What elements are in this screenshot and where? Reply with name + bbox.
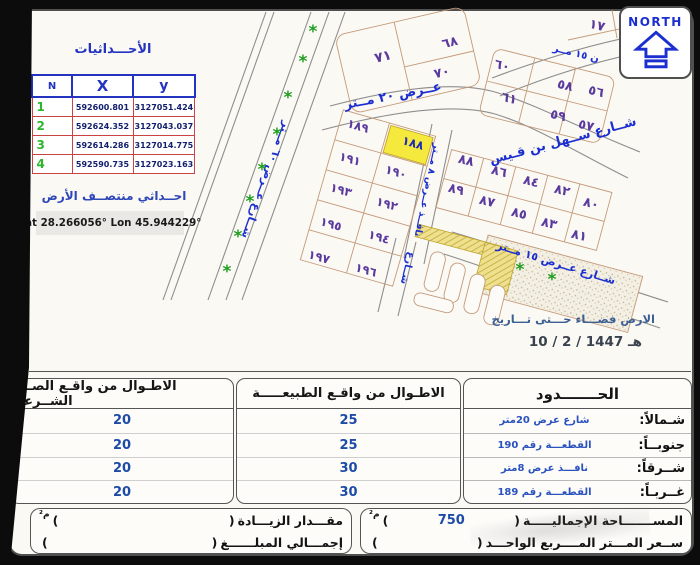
length-row: 20 — [11, 433, 233, 457]
coordinate-value: 592614.286 — [72, 136, 133, 155]
coordinate-row: 1592600.8013127051.424 — [32, 97, 195, 117]
deed-length-value: 20 — [113, 413, 131, 428]
coordinate-value: 3127043.037 — [133, 117, 195, 136]
boundary-value: القطعـــة رقم 190 — [470, 440, 619, 451]
total-area-row: المســـــــاحة الإجماليـــــة ( 750 ) م² — [361, 509, 691, 531]
paren-close: ) — [53, 513, 59, 528]
coordinates-header-row: N X y — [32, 75, 195, 97]
col-header-y: y — [133, 75, 195, 97]
coordinate-value: 592590.735 — [72, 155, 133, 174]
center-coordinates-title: احــداثي منتصــف الأرض — [38, 189, 190, 203]
coordinate-row: 4592590.7353127023.163 — [32, 155, 195, 174]
north-arrow-icon — [630, 29, 682, 71]
price-per-meter-label: ســعر المـــتر المــــربع الواحـــد — [486, 535, 683, 550]
deed-lengths-table: الاطـوال من واقـع الصــك الشــرعي 202020… — [10, 378, 234, 504]
coordinate-value: 3127051.424 — [133, 97, 195, 117]
deed-length-value: 20 — [113, 461, 131, 476]
amount-summary-box: مقـــدار الزيـــادة ( ) م² إجمـــالي الم… — [30, 508, 352, 554]
coordinates-table: N X y 1592600.8013127051.4242592624.3523… — [31, 74, 196, 174]
boundary-value: نافـــذ عرض 8متر — [470, 463, 619, 474]
status-date: 10 / 2 / 1447 هـ — [529, 334, 642, 350]
total-area-unit: م² — [369, 510, 380, 520]
boundary-value: القطعـــة رقم 189 — [470, 487, 619, 498]
point-number: 3 — [32, 136, 72, 155]
deed-length-value: 20 — [113, 485, 131, 500]
north-label: NORTH — [628, 15, 683, 29]
boundaries-table: الحـــــــدود شـمالاً:شارع عرض 20مترجنوب… — [463, 378, 692, 504]
nature-lengths-title: الاطـوال من واقـع الطبيعـــــة — [237, 379, 460, 409]
paren-close: ) — [383, 513, 389, 528]
col-header-n: N — [32, 75, 72, 97]
paren-close: ) — [42, 535, 48, 550]
length-row: 30 — [237, 457, 460, 481]
point-number: 4 — [32, 155, 72, 174]
section-divider — [29, 371, 691, 372]
length-row: 30 — [237, 480, 460, 504]
boundaries-title: الحـــــــدود — [464, 379, 691, 409]
increase-label: مقـــدار الزيـــادة — [238, 513, 343, 528]
length-row: 25 — [237, 433, 460, 457]
boundary-row: شــرقاً:نافـــذ عرض 8متر — [464, 457, 691, 481]
total-amount-row: إجمـــالي المبلــــــغ ( ) — [31, 531, 351, 553]
north-indicator: NORTH — [619, 6, 692, 79]
coordinate-value: 592624.352 — [72, 117, 133, 136]
length-row: 20 — [11, 409, 233, 433]
length-row: 20 — [11, 480, 233, 504]
boundary-row: غــربـاً:القطعـــة رقم 189 — [464, 480, 691, 504]
paren-open: ( — [212, 535, 218, 550]
boundary-value: شارع عرض 20متر — [470, 415, 619, 426]
nature-length-value: 25 — [339, 413, 357, 428]
nature-length-value: 30 — [339, 461, 357, 476]
col-header-x: X — [72, 75, 133, 97]
boundary-direction-label: شــرقاً: — [619, 461, 685, 476]
paren-open: ( — [477, 535, 483, 550]
area-summary-box: المســـــــاحة الإجماليـــــة ( 750 ) م²… — [360, 508, 692, 554]
increase-unit: م² — [39, 510, 50, 520]
paren-open: ( — [514, 513, 520, 528]
increase-row: مقـــدار الزيـــادة ( ) م² — [31, 509, 351, 531]
deed-length-value: 20 — [113, 438, 131, 453]
paren-open: ( — [229, 513, 235, 528]
boundary-direction-label: شـمالاً: — [619, 413, 685, 428]
boundary-direction-label: جنوبــاً: — [619, 438, 685, 453]
deed-lengths-title: الاطـوال من واقـع الصــك الشــرعي — [11, 379, 233, 409]
length-row: 25 — [237, 409, 460, 433]
length-row: 20 — [11, 457, 233, 481]
total-area-label: المســـــــاحة الإجماليـــــة — [523, 513, 683, 528]
boundary-direction-label: غــربـاً: — [619, 485, 685, 500]
total-amount-label: إجمـــالي المبلــــــغ — [220, 535, 343, 550]
nature-length-value: 30 — [339, 485, 357, 500]
paren-close: ) — [372, 535, 378, 550]
coordinate-row: 2592624.3523127043.037 — [32, 117, 195, 136]
total-area-value: 750 — [391, 513, 511, 528]
coordinates-title: الأحـــداثيات — [38, 42, 188, 57]
point-number: 1 — [32, 97, 72, 117]
price-per-meter-row: ســعر المـــتر المــــربع الواحـــد ( ) — [361, 531, 691, 553]
nature-length-value: 25 — [339, 438, 357, 453]
boundary-row: جنوبــاً:القطعـــة رقم 190 — [464, 433, 691, 457]
nature-lengths-table: الاطـوال من واقـع الطبيعـــــة 25253030 — [236, 378, 461, 504]
land-status-note: الارض فضـــاء حـــتى تـــاريخ — [491, 312, 655, 326]
lat-lon-value: Lat 28.266056° Lon 45.944229° — [36, 211, 184, 235]
boundary-row: شـمالاً:شارع عرض 20متر — [464, 409, 691, 433]
coordinate-row: 3592614.2863127014.775 — [32, 136, 195, 155]
coordinate-value: 592600.801 — [72, 97, 133, 117]
coordinate-value: 3127023.163 — [133, 155, 195, 174]
point-number: 2 — [32, 117, 72, 136]
coordinate-value: 3127014.775 — [133, 136, 195, 155]
